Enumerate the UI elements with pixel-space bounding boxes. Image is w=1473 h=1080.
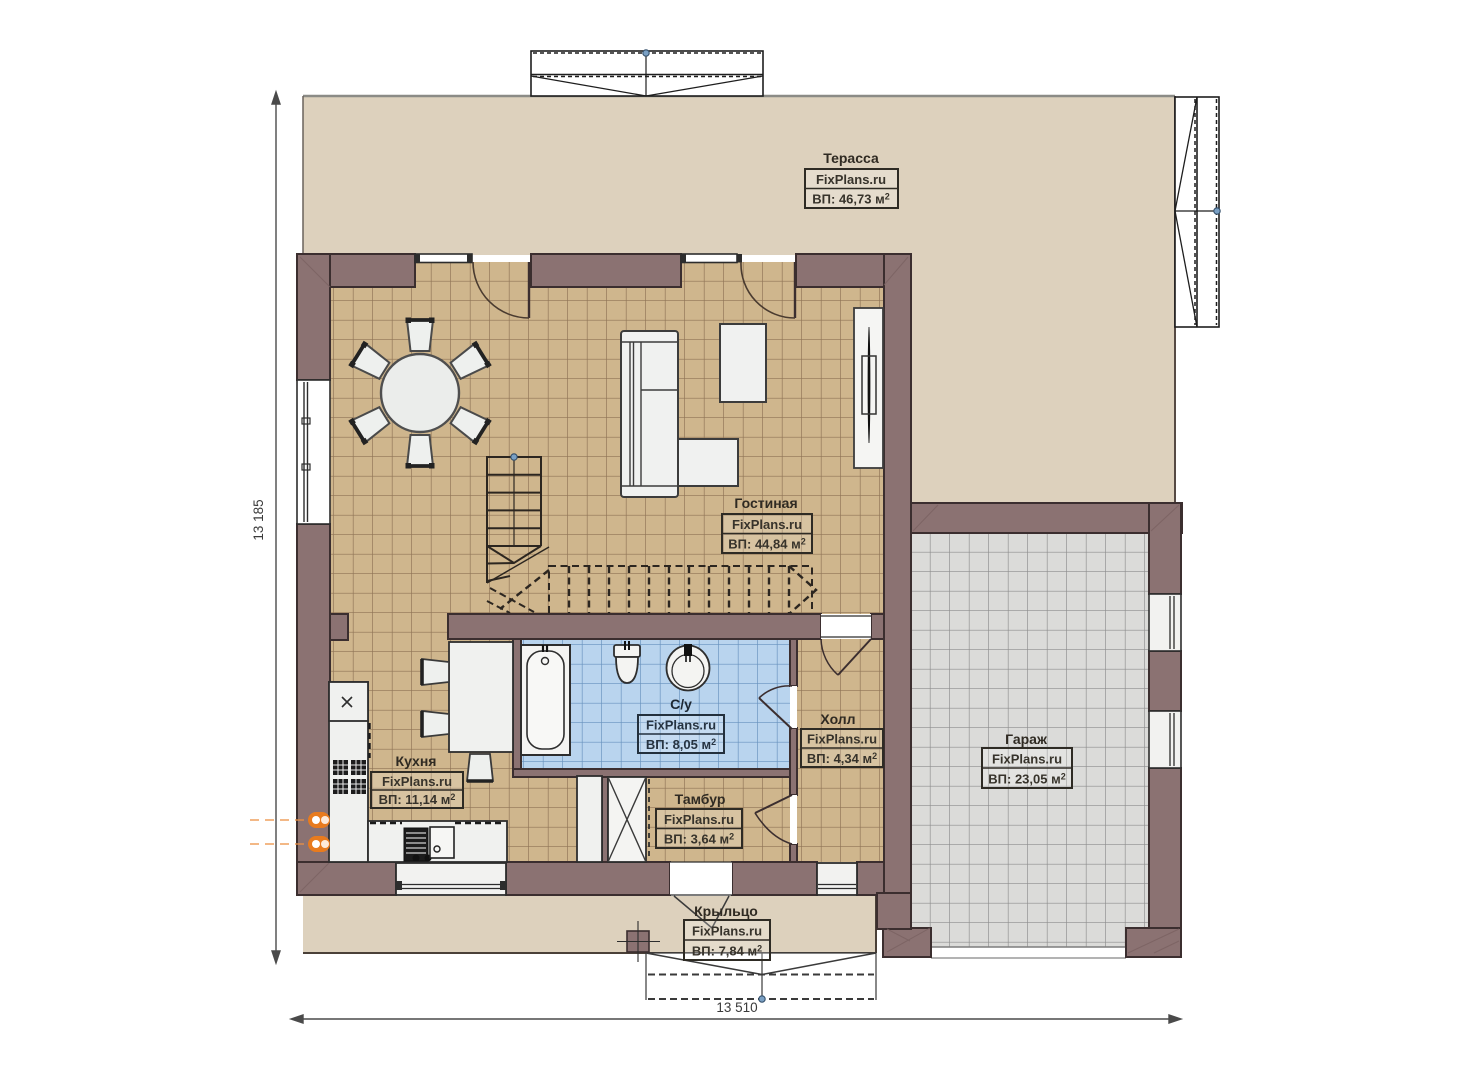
- svg-text:ВП: 3,64 м2: ВП: 3,64 м2: [664, 832, 734, 847]
- svg-text:ВП: 46,73 м2: ВП: 46,73 м2: [812, 192, 889, 207]
- svg-text:FixPlans.ru: FixPlans.ru: [646, 718, 716, 733]
- svg-text:FixPlans.ru: FixPlans.ru: [992, 752, 1062, 767]
- svg-text:Гостиная: Гостиная: [734, 495, 797, 511]
- svg-text:ВП: 8,05 м2: ВП: 8,05 м2: [646, 737, 716, 752]
- svg-text:ВП: 11,14 м2: ВП: 11,14 м2: [379, 792, 456, 807]
- svg-text:ВП: 23,05 м2: ВП: 23,05 м2: [988, 772, 1065, 787]
- svg-text:ВП: 7,84 м2: ВП: 7,84 м2: [692, 944, 762, 959]
- svg-text:FixPlans.ru: FixPlans.ru: [382, 774, 452, 789]
- svg-text:Крыльцо: Крыльцо: [694, 903, 758, 919]
- svg-text:ВП: 4,34 м2: ВП: 4,34 м2: [807, 751, 877, 766]
- svg-text:Кухня: Кухня: [396, 753, 437, 769]
- svg-text:FixPlans.ru: FixPlans.ru: [664, 812, 734, 827]
- svg-text:13 510: 13 510: [716, 1000, 757, 1015]
- svg-text:13 185: 13 185: [251, 499, 266, 540]
- svg-text:Тамбур: Тамбур: [675, 791, 726, 807]
- svg-text:FixPlans.ru: FixPlans.ru: [732, 517, 802, 532]
- svg-text:FixPlans.ru: FixPlans.ru: [692, 924, 762, 939]
- svg-text:Терасса: Терасса: [823, 150, 879, 166]
- svg-text:FixPlans.ru: FixPlans.ru: [816, 172, 886, 187]
- svg-text:Гараж: Гараж: [1005, 731, 1048, 747]
- svg-text:С/у: С/у: [670, 696, 692, 712]
- svg-text:Холл: Холл: [820, 711, 855, 727]
- svg-text:FixPlans.ru: FixPlans.ru: [807, 732, 877, 747]
- svg-text:ВП: 44,84 м2: ВП: 44,84 м2: [728, 537, 805, 552]
